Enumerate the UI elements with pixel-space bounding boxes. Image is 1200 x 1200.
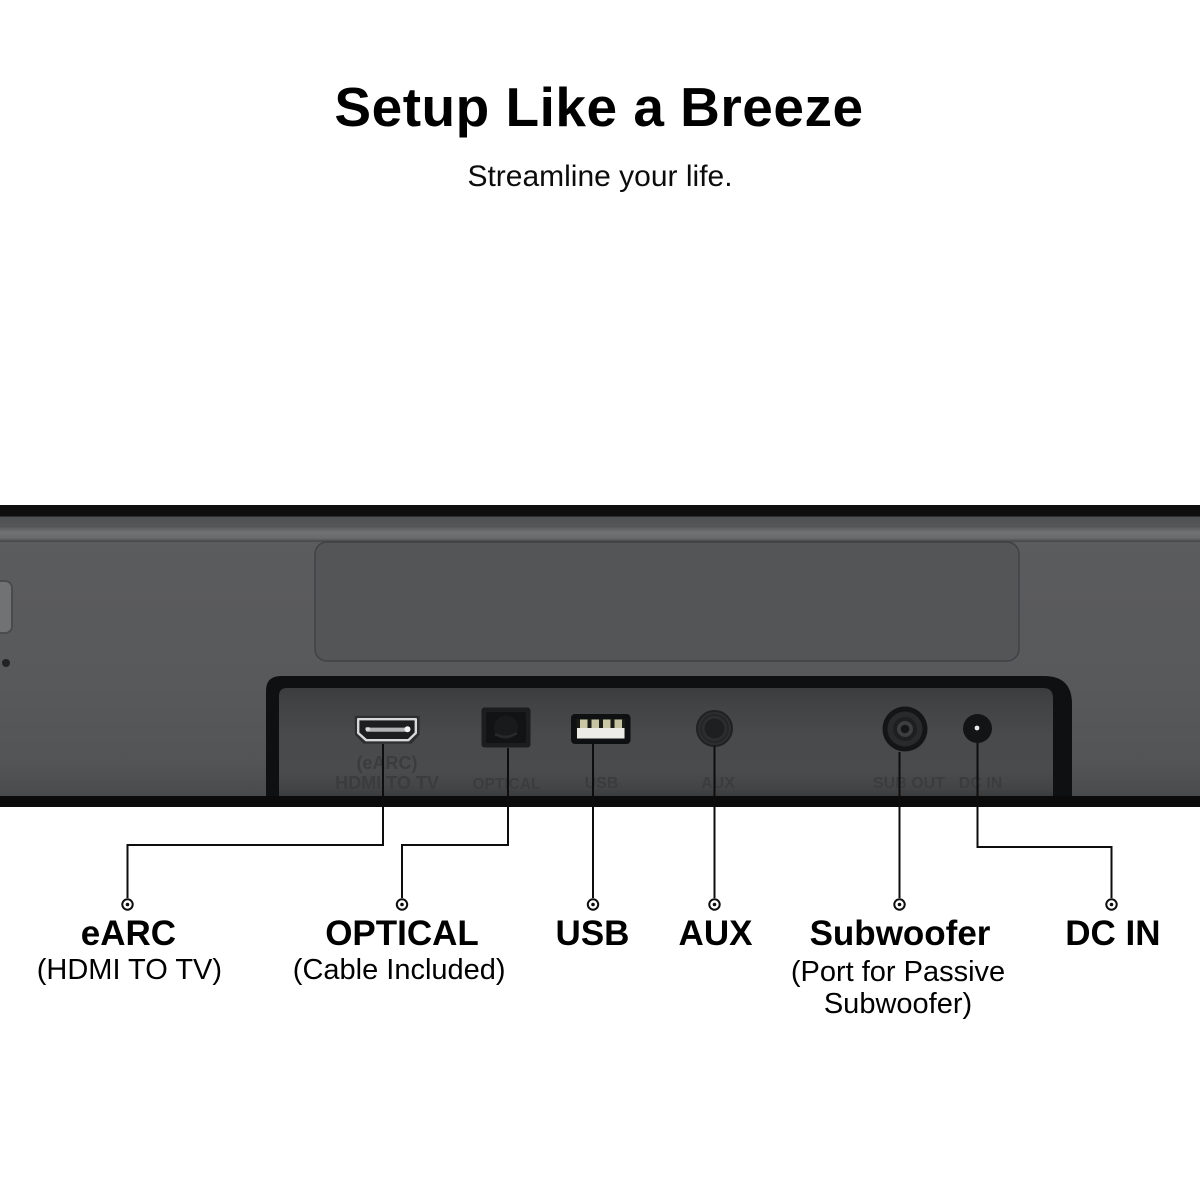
svg-text:(eARC): (eARC) — [357, 753, 418, 773]
svg-text:USB: USB — [585, 775, 619, 792]
svg-text:AUX: AUX — [701, 775, 735, 792]
svg-text:HDMI TO TV: HDMI TO TV — [335, 773, 439, 793]
svg-text:OPTICAL: OPTICAL — [472, 776, 540, 793]
svg-text:DC IN: DC IN — [959, 775, 1003, 792]
svg-text:SUB OUT: SUB OUT — [873, 775, 945, 792]
